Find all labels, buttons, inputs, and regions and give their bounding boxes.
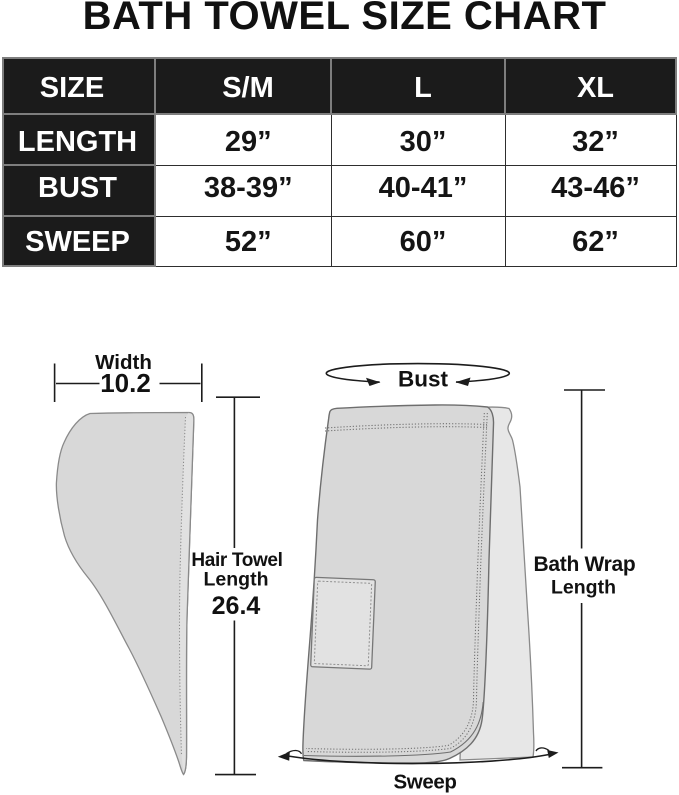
svg-text:Sweep: Sweep [394,771,457,794]
svg-text:Bath Wrap: Bath Wrap [534,553,636,576]
svg-text:Length: Length [204,569,269,591]
svg-text:26.4: 26.4 [212,592,261,620]
svg-text:Length: Length [551,576,616,598]
svg-text:Bust: Bust [398,366,449,391]
svg-text:10.2: 10.2 [100,368,151,398]
